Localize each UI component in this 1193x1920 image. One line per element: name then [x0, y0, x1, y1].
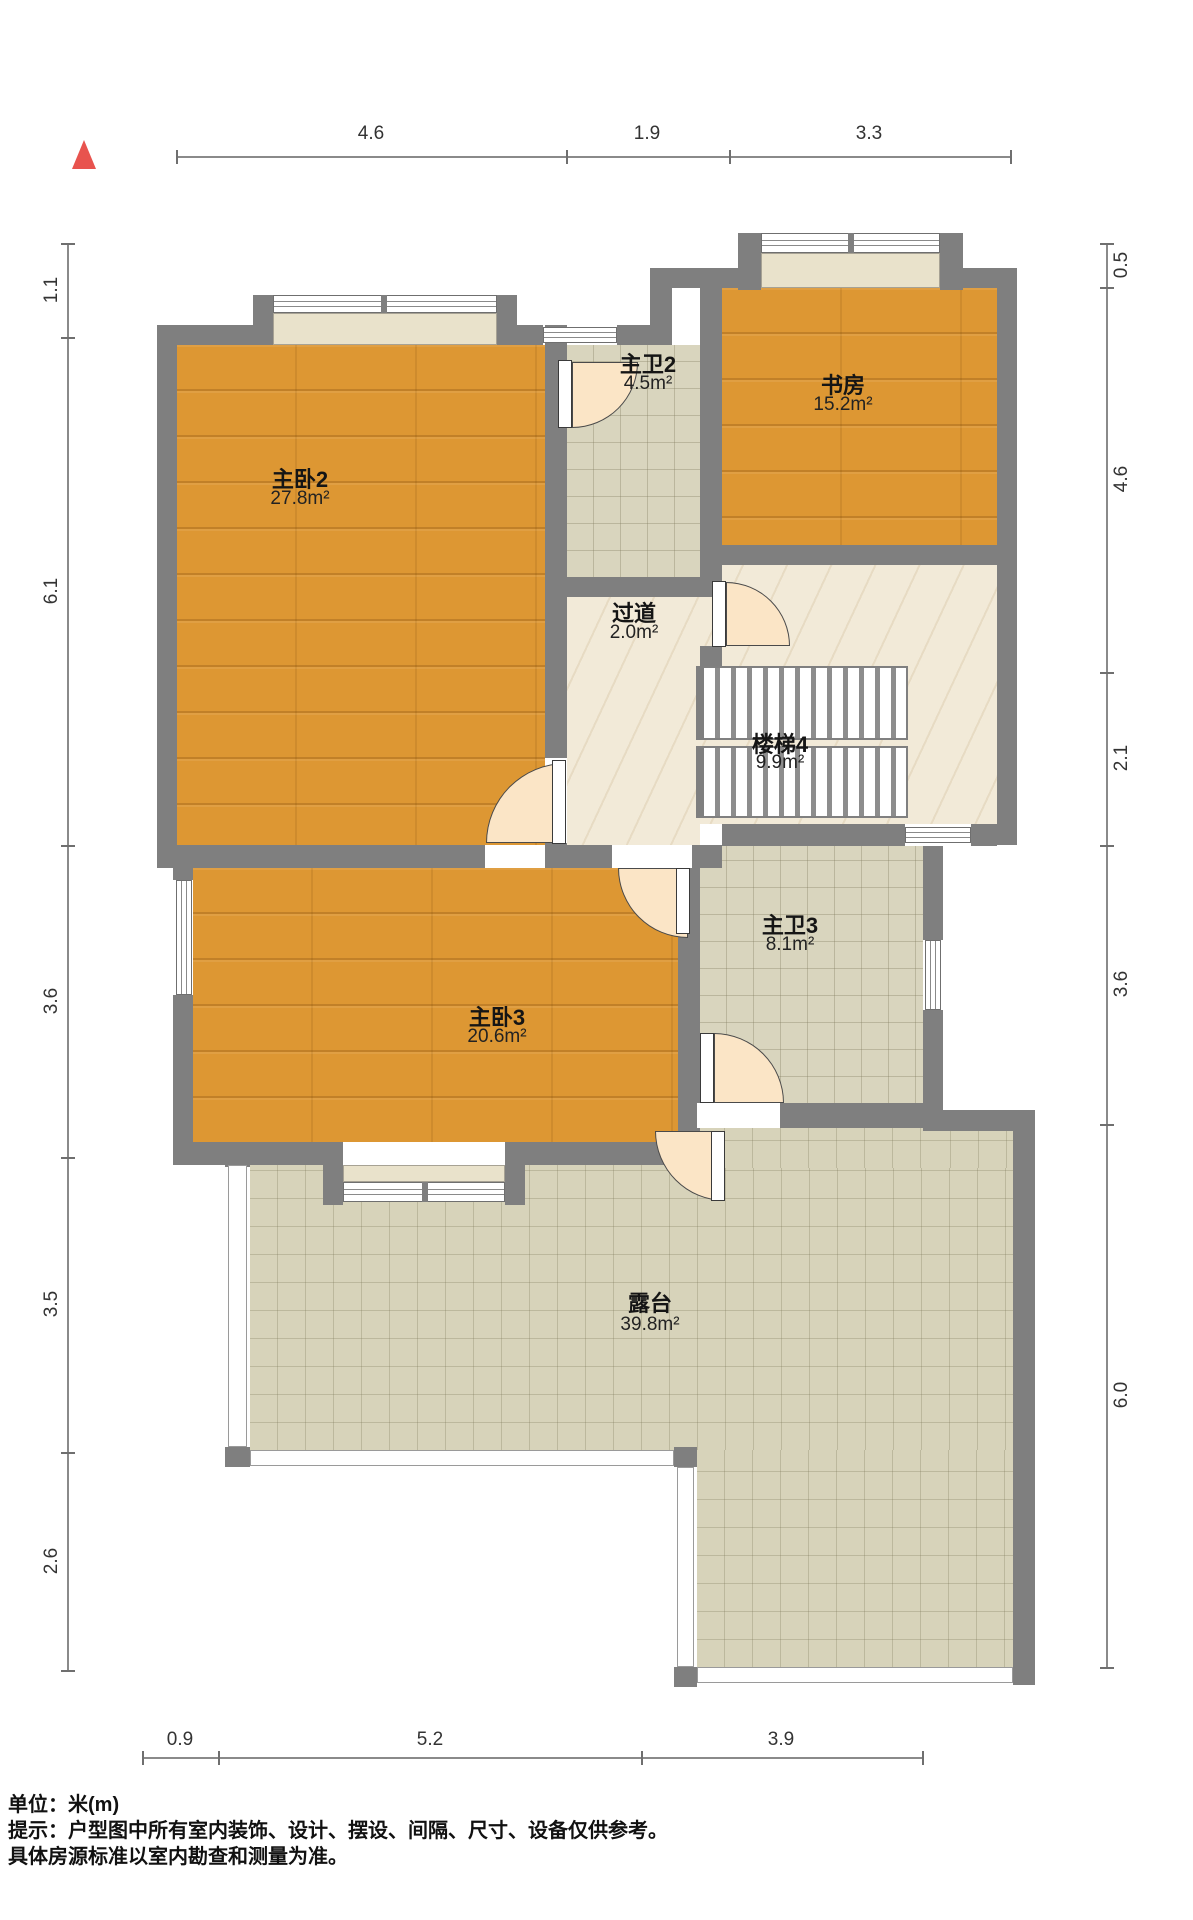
dim-top-2: 1.9 — [634, 123, 660, 145]
dim-top-1: 4.6 — [358, 123, 384, 145]
footnotes: 单位：米(m) 提示：户型图中所有室内装饰、设计、摆设、间隔、尺寸、设备仅供参考… — [8, 1792, 668, 1870]
dim-line-left — [67, 243, 69, 1670]
wall-study-bottom — [722, 545, 1017, 565]
dim-tick — [641, 1751, 643, 1765]
wall-top-seg-a — [517, 325, 543, 345]
floor-plan-canvas: 主卧2 27.8m² 主卫2 4.5m² 书房 15.2m² 过道 2.0m² … — [0, 0, 1193, 1920]
terrace-rail-bottom — [697, 1667, 1013, 1683]
wall-terrace-right — [1013, 1110, 1035, 1685]
wall-mb2-mb3-divider-b — [565, 845, 612, 868]
wall-stairhall-bottom-a — [722, 824, 905, 846]
wall-hall-left-b — [545, 843, 567, 868]
dim-line-top — [176, 156, 1010, 158]
window-left-wall — [176, 880, 192, 995]
staircase-upper-cap — [696, 666, 704, 740]
dim-tick — [61, 243, 75, 245]
room-floor-master-bedroom-2 — [177, 345, 545, 845]
dim-left-4: 3.5 — [41, 1291, 63, 1317]
room-area-stairs: 9.9m² — [756, 752, 805, 774]
room-area-hallway: 2.0m² — [610, 622, 659, 644]
door-leaf-terrace — [711, 1131, 725, 1201]
dim-top-3: 3.3 — [856, 123, 882, 145]
windowsill-mb2-bay — [273, 313, 497, 345]
wall-bath3-bottom-b — [780, 1103, 943, 1128]
windowsill-mb3-bay — [343, 1165, 505, 1182]
terrace-rail-step-vertical — [677, 1467, 694, 1667]
room-floor-master-bedroom-3 — [193, 868, 678, 1142]
window-stairhall-bottom — [905, 827, 971, 843]
window-bath2-top — [543, 327, 617, 343]
window-bath3-right — [925, 940, 941, 1010]
door-leaf-mb3 — [676, 868, 690, 934]
dim-left-3: 3.6 — [41, 988, 63, 1014]
dim-bottom-2: 5.2 — [417, 1729, 443, 1751]
dim-tick — [1100, 672, 1114, 674]
dim-tick — [566, 150, 568, 164]
wall-bath2-bottom — [545, 577, 722, 597]
room-area-study: 15.2m² — [813, 394, 872, 416]
wall-bath3-bottom-a — [678, 1103, 697, 1128]
wall-bath3-right-a — [923, 846, 943, 940]
door-leaf-bath3 — [700, 1033, 714, 1103]
dim-bottom-3: 3.9 — [768, 1729, 794, 1751]
dim-tick — [1100, 243, 1114, 245]
dim-right-1: 0.5 — [1111, 252, 1133, 278]
dim-tick — [176, 150, 178, 164]
rail-post-bottom-left — [225, 1447, 250, 1467]
staircase-lower-cap — [696, 746, 704, 818]
wall-stairhall-bottom-b — [971, 824, 997, 846]
wall-left-lower-a — [173, 845, 193, 880]
dim-left-1: 1.1 — [41, 277, 63, 303]
wall-mb2-mb3-divider-a — [157, 845, 485, 868]
dim-right-2: 4.6 — [1111, 466, 1133, 492]
rail-post-mid — [674, 1447, 697, 1467]
dim-right-5: 6.0 — [1111, 1382, 1133, 1408]
wall-bay3-post-left — [323, 1142, 343, 1205]
dim-right-4: 3.6 — [1111, 971, 1133, 997]
dim-left-5: 2.6 — [41, 1548, 63, 1574]
dim-tick — [218, 1751, 220, 1765]
room-area-master-bath-3: 8.1m² — [766, 934, 815, 956]
dim-tick — [61, 337, 75, 339]
window-study-bay-mullion — [848, 233, 854, 253]
wall-bay2-post-right — [940, 233, 963, 290]
terrace-floor-patch-1 — [697, 1128, 923, 1168]
wall-left-upper — [157, 325, 177, 845]
door-leaf-study — [712, 581, 726, 647]
wall-bath2-study-divider — [700, 268, 722, 577]
dim-tick — [61, 1670, 75, 1672]
wall-bay2-post-left — [738, 233, 761, 290]
wall-top-mb2-left — [157, 325, 253, 345]
doorway-bath3-terrace — [697, 1103, 780, 1128]
wall-mb2-mb3-divider-c — [692, 845, 722, 868]
dim-left-2: 6.1 — [41, 578, 63, 604]
window-mb2-bay-mullion — [381, 295, 387, 313]
room-area-terrace: 39.8m² — [620, 1314, 679, 1336]
wall-left-lower-b — [173, 995, 193, 1165]
terrace-rail-step-horizontal — [250, 1450, 674, 1466]
dim-tick — [61, 1157, 75, 1159]
door-leaf-mb2 — [552, 760, 566, 844]
dim-tick — [61, 845, 75, 847]
terrace-rail-left — [228, 1165, 247, 1447]
wall-bay3-post-right — [505, 1142, 525, 1205]
room-area-master-bedroom-2: 27.8m² — [270, 488, 329, 510]
terrace-floor-lower — [697, 1450, 1013, 1667]
dim-line-right — [1106, 243, 1108, 1667]
wall-bay1-post-left — [253, 295, 273, 345]
dim-bottom-1: 0.9 — [167, 1729, 193, 1751]
dim-right-3: 2.1 — [1111, 745, 1133, 771]
room-floor-study — [722, 288, 997, 545]
disclaimer-line-2: 具体房源标准以室内勘查和测量为准。 — [8, 1844, 668, 1870]
room-area-master-bath-2: 4.5m² — [624, 373, 673, 395]
door-leaf-bath2 — [558, 360, 572, 428]
dim-tick — [729, 150, 731, 164]
wall-hall-left-a — [545, 597, 567, 758]
wall-bay1-post-right — [497, 295, 517, 345]
dim-tick — [61, 1452, 75, 1454]
dim-tick — [1010, 150, 1012, 164]
dim-tick — [142, 1751, 144, 1765]
doorway-mb3 — [612, 845, 692, 868]
dim-tick — [1100, 845, 1114, 847]
dim-tick — [922, 1751, 924, 1765]
disclaimer-line-1: 提示：户型图中所有室内装饰、设计、摆设、间隔、尺寸、设备仅供参考。 — [8, 1818, 668, 1844]
wall-step-top — [650, 268, 738, 288]
wall-top-seg-b — [617, 325, 650, 345]
dim-line-bottom — [142, 1757, 922, 1759]
windowsill-study-bay — [761, 253, 940, 288]
terrace-floor-patch-2 — [923, 1131, 1013, 1168]
room-area-master-bedroom-3: 20.6m² — [467, 1026, 526, 1048]
dim-tick — [1100, 1124, 1114, 1126]
window-mb3-bay-mullion — [422, 1182, 428, 1202]
rail-post-bottom — [674, 1667, 697, 1687]
north-indicator-icon — [72, 140, 96, 169]
dim-tick — [1100, 287, 1114, 289]
dim-tick — [1100, 1667, 1114, 1669]
unit-note: 单位：米(m) — [8, 1792, 668, 1818]
